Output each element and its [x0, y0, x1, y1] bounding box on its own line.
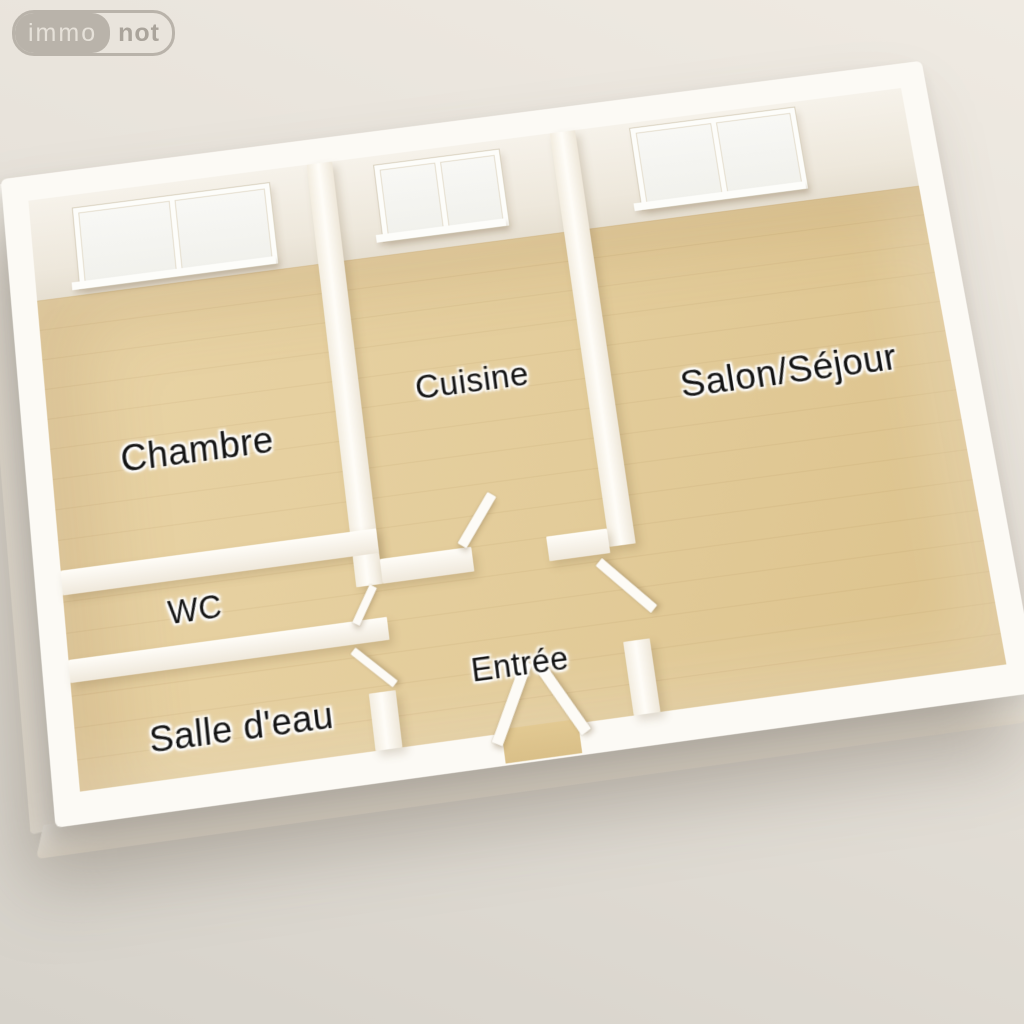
window-pane — [715, 113, 802, 194]
window-pane — [380, 163, 444, 237]
wall-wc-entree-stub — [353, 553, 383, 587]
logo-not-segment: not — [110, 13, 172, 53]
room-label-wc: WC — [166, 588, 224, 633]
immonot-logo: immo not — [12, 10, 175, 56]
window-pane — [440, 155, 504, 229]
floorplan-3d: Chambre Cuisine Salon/Séjour WC Entrée S… — [1, 61, 1024, 828]
logo-immo-segment: immo — [15, 13, 110, 53]
building-slab: Chambre Cuisine Salon/Séjour WC Entrée S… — [1, 61, 1024, 828]
window-pane — [636, 123, 723, 205]
